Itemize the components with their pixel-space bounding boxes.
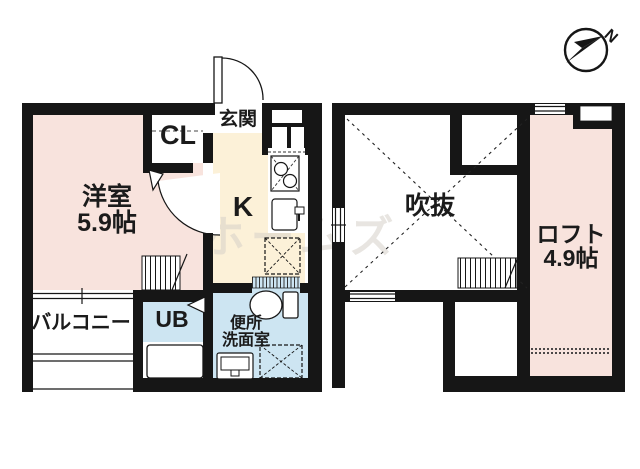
balcony-rail-icon xyxy=(22,354,133,389)
floor-plan-page: ホームズ xyxy=(0,0,640,469)
laundry-space-icon xyxy=(260,345,302,378)
living-room-size: 5.9帖 xyxy=(57,210,157,236)
stairs-1f-icon xyxy=(142,254,187,290)
washroom-line2: 洗面室 xyxy=(211,332,281,349)
stairs-2f-icon xyxy=(458,257,518,288)
washroom-line1: 便所 xyxy=(211,315,281,332)
washer-pan-icon xyxy=(147,345,203,378)
label-balcony: バルコニー xyxy=(31,313,131,334)
label-washroom: 便所 洗面室 xyxy=(211,315,281,349)
stove-icon xyxy=(268,152,305,191)
refrigerator-space-icon xyxy=(265,238,300,274)
loft-size: 4.9帖 xyxy=(526,246,616,270)
label-kitchen: K xyxy=(223,192,263,221)
wash-basin-icon xyxy=(217,353,253,379)
compass-icon: N xyxy=(565,26,621,71)
loft-name: ロフト xyxy=(526,222,616,246)
label-entrance: 玄関 xyxy=(214,110,262,130)
living-room-name: 洋室 xyxy=(57,184,157,210)
label-loft: ロフト 4.9帖 xyxy=(526,222,616,270)
shoe-cabinet xyxy=(272,110,302,123)
compass-north-label: N xyxy=(601,26,621,46)
accordion-door-icon xyxy=(252,277,300,288)
entrance-door-icon xyxy=(214,57,263,103)
label-living-room: 洋室 5.9帖 xyxy=(57,184,157,237)
label-unit-bath: UB xyxy=(147,307,197,331)
label-void: 吹抜 xyxy=(390,193,470,219)
label-closet: CL xyxy=(153,121,203,149)
